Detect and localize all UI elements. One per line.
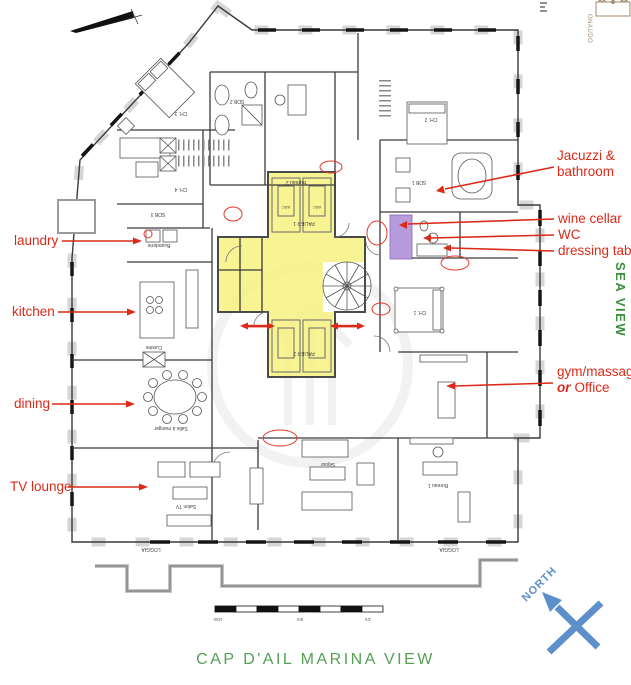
wc-fixture [420, 221, 428, 231]
jacuzzi-tub-inner [458, 159, 486, 193]
floor-plan-page: CH. 3 CH. 4 SDB 2 Bureau 2 CH. 2 SDB 1 S… [0, 0, 631, 685]
table-ch4 [136, 162, 158, 177]
room-label-loggia-right: LOGGIA [439, 546, 459, 552]
tv-table [173, 487, 207, 499]
room-label-palier2: PALIER 2 [293, 350, 315, 356]
sofa-bureau1 [458, 492, 470, 522]
annotation-kitchen: kitchen [12, 304, 55, 320]
annotation-gym: gym/massage orOffice [557, 364, 631, 395]
room-label-sejour: Séjour [320, 461, 335, 467]
room-label-ch2: CH. 2 [424, 116, 437, 122]
annotation-jacuzzi: Jacuzzi & bathroom [557, 148, 615, 179]
chair-bureau2 [275, 95, 285, 105]
north-compass [542, 592, 601, 652]
bed-ch3 [135, 58, 194, 117]
gym-counter [420, 355, 467, 362]
chair-bureau1 [433, 447, 443, 457]
scale-label-left: 10m [213, 617, 222, 622]
dressing-counter [417, 244, 447, 256]
nightstand [118, 118, 135, 135]
left-wing [58, 200, 95, 233]
scale-label-right: 1m [365, 617, 372, 622]
sofa2 [302, 492, 352, 510]
annotation-jacuzzi-line2: bathroom [557, 164, 614, 179]
sink2 [396, 188, 410, 202]
room-label-sdb1: SDB 1 [412, 179, 427, 185]
room-label-sdb3: SDB 3 [151, 211, 166, 217]
desk-bureau2 [288, 85, 306, 115]
page-title: CAP D'AIL MARINA VIEW [0, 651, 631, 669]
sofa1 [302, 440, 348, 457]
annotation-dining: dining [14, 396, 50, 412]
annotation-tv-lounge: TV lounge [10, 479, 72, 495]
desk-bureau1 [423, 462, 457, 475]
annotation-dressing-table: dressing table [558, 243, 631, 259]
annotation-wc: WC [558, 227, 581, 243]
room-label-bureau1: Bureau 1 [428, 482, 449, 488]
kitchen-counter [186, 270, 198, 328]
fireplace [250, 468, 263, 504]
tv-cabinet2 [190, 462, 220, 477]
room-label-asc1: ASC [282, 205, 290, 210]
coffee-table [310, 467, 345, 480]
room-label-cuisine: Cuisine [145, 344, 162, 350]
annotation-gym-line1: gym/massage [557, 364, 631, 379]
room-label-salle-a-manger: Salle à manger [154, 425, 188, 431]
room-label-ch4: CH. 4 [174, 186, 187, 192]
annotation-jacuzzi-line1: Jacuzzi & [557, 148, 615, 163]
armchair [357, 463, 374, 485]
room-label-ch1: CH. 1 [413, 309, 426, 315]
sink1 [396, 158, 410, 172]
loggia-parapet [95, 560, 518, 591]
room-label-buanderie: Buanderie [147, 242, 170, 248]
room-label-salon-tv: Salon TV [175, 503, 196, 509]
drafting-arrow [70, 9, 142, 33]
wardrobes [160, 138, 233, 171]
bathroom2-fixtures [215, 82, 262, 135]
scale-label-mid: 5m [297, 617, 304, 622]
room-label-asc2: ASC [313, 205, 321, 210]
room-label-ch3: CH. 3 [174, 110, 187, 116]
watermark-emblem [540, 0, 630, 16]
tv-cabinet1 [158, 462, 185, 477]
wine-cellar-highlight [390, 215, 412, 259]
dining-table [144, 371, 207, 424]
tv-sofa [167, 515, 211, 526]
room-label-bureau2: Bureau 2 [286, 179, 307, 185]
annotation-gym-office: Office [575, 380, 610, 395]
scale-bar: 10m 5m 1m [213, 606, 383, 622]
room-label-palier1: PALIER 1 [293, 220, 315, 226]
sea-view-label: SEA VIEW [613, 262, 628, 337]
annotation-gym-or: or [557, 380, 571, 395]
pillows-ch2 [409, 104, 445, 113]
dryer [163, 230, 177, 242]
watermark-text: ONAUDO [586, 14, 592, 43]
annotation-wine-cellar: wine cellar [558, 211, 622, 227]
spiral-staircase [323, 262, 371, 310]
room-label-sdb2: SDB 2 [230, 98, 245, 104]
room-label-loggia-left: LOGGIA [141, 546, 161, 552]
cabinet-bureau1 [410, 438, 453, 444]
washer [146, 230, 160, 242]
annotation-laundry: laundry [14, 233, 58, 249]
